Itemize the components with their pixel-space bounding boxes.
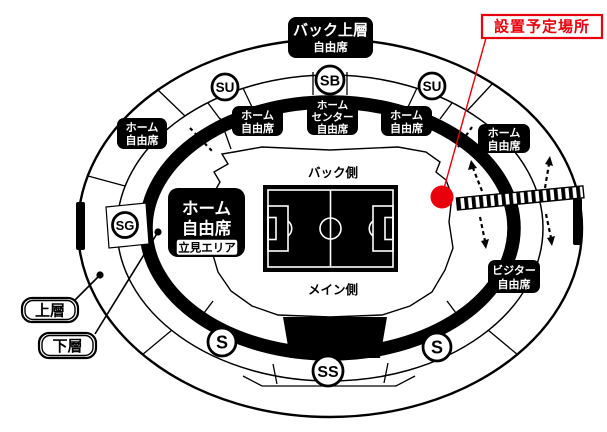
section-home-center-line3: 自由席	[317, 123, 349, 136]
section-home-outer-left-line1: ホーム	[126, 121, 159, 134]
section-home-main-line2: 自由席	[182, 218, 232, 238]
main-side-label: メイン側	[308, 282, 358, 297]
section-home-inner-right: ホーム 自由席	[381, 106, 432, 136]
section-home-inner-left-line2: 自由席	[241, 121, 274, 135]
lower-tier-label: 下層	[52, 338, 82, 355]
section-home-main: ホーム 自由席 立見エリア	[168, 188, 245, 257]
section-home-inner-right-line1: ホーム	[390, 109, 423, 122]
main-stand-block	[283, 317, 387, 358]
outer-wall-segment-right	[573, 198, 582, 245]
section-back-upper-line1: バック上層	[293, 22, 368, 39]
gate-sb-label: SB	[320, 74, 340, 90]
section-home-inner-left: ホーム 自由席	[232, 106, 283, 136]
outer-wall-segment-left	[76, 202, 85, 250]
section-home-center-line1: ホーム	[317, 100, 349, 112]
section-home-inner-right-line2: 自由席	[390, 121, 423, 135]
gate-s-right: S	[423, 333, 451, 361]
upper-tier-label: 上層	[35, 303, 65, 320]
upper-tier-badge: 上層	[22, 298, 78, 322]
pitch	[263, 185, 398, 272]
section-home-main-line1: ホーム	[182, 200, 231, 218]
lower-tier-badge: 下層	[39, 333, 96, 358]
gate-su-right-label: SU	[423, 79, 442, 94]
lower-tier-marker-dot	[154, 228, 161, 235]
gate-sb: SB	[316, 66, 344, 94]
back-side-label: バック側	[308, 165, 358, 180]
section-home-outer-right-line1: ホーム	[488, 127, 521, 140]
gate-ss-label: SS	[317, 364, 339, 381]
section-visitor: ビジター 自由席	[488, 260, 540, 293]
section-home-outer-left: ホーム 自由席	[117, 118, 167, 149]
gate-su-left-label: SU	[216, 80, 235, 95]
gate-s-right-label: S	[431, 338, 443, 358]
standing-area-label: 立見エリア	[178, 241, 236, 255]
section-visitor-line1: ビジター	[492, 263, 536, 277]
gate-sg-label: SG	[116, 218, 135, 233]
gate-su-right: SU	[419, 73, 445, 99]
installation-marker-dot	[431, 186, 454, 209]
stadium-map: バック側 メイン側 SU SB SU SG	[0, 0, 607, 432]
section-home-center: ホーム センター 自由席	[307, 97, 358, 136]
gate-s-left: S	[208, 328, 236, 356]
section-visitor-line2: 自由席	[498, 277, 531, 291]
gate-s-left-label: S	[216, 333, 228, 353]
section-back-upper: バック上層 自由席	[288, 17, 373, 58]
gate-ss: SS	[313, 356, 343, 386]
installation-label: 設置予定場所	[494, 18, 590, 36]
stadium-seating-map-page: バック側 メイン側 SU SB SU SG	[0, 0, 607, 432]
section-back-upper-line2: 自由席	[313, 40, 348, 54]
gate-su-left: SU	[212, 74, 238, 100]
section-home-outer-right-line2: 自由席	[488, 139, 521, 153]
upper-tier-marker-dot	[96, 271, 103, 278]
section-home-outer-left-line2: 自由席	[126, 133, 159, 147]
section-home-outer-right: ホーム 自由席	[478, 124, 530, 153]
gate-sg: SG	[113, 213, 138, 238]
section-home-center-line2: センター	[312, 112, 354, 124]
section-home-inner-left-line1: ホーム	[241, 109, 274, 122]
